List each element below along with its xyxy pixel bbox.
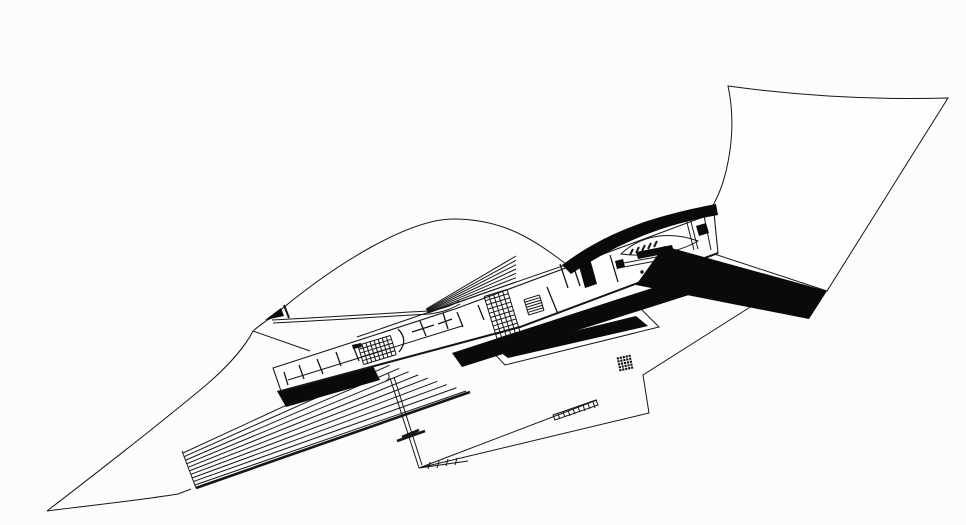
ramp-stripes-line: [195, 391, 466, 485]
flag-marker: [265, 308, 284, 320]
ramp-bottom-edge: [196, 392, 470, 488]
sail-parcel-outline: [690, 86, 948, 291]
site-junction-line: [253, 331, 310, 351]
waffle-grid-square: [616, 354, 634, 372]
site-boundary-top-curve: [47, 318, 271, 511]
site-plan-page: [0, 0, 966, 525]
room-dot: [640, 270, 643, 273]
site-plan-drawing: [0, 0, 966, 525]
ladder-strip-outline: [553, 400, 598, 420]
ladder-strip-ticks: [558, 402, 595, 419]
flag-marker-tick: [284, 305, 289, 318]
site-boundary-bottom-curve: [47, 489, 191, 511]
